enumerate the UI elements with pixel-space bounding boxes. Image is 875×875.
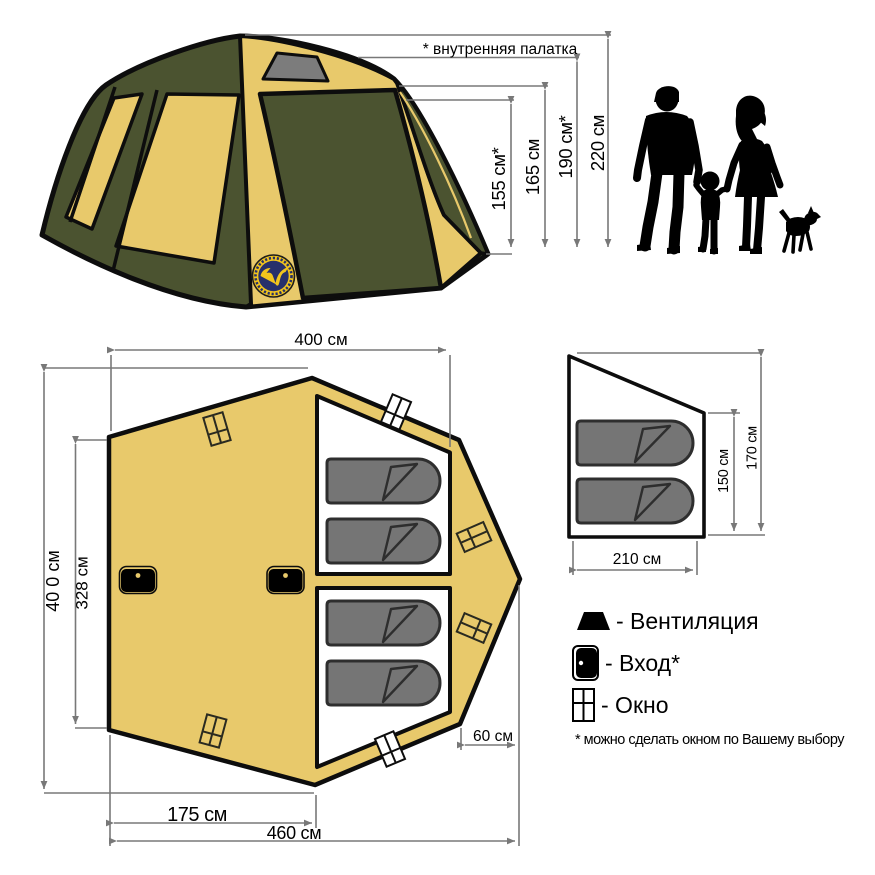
svg-text:220 см: 220 см	[587, 115, 608, 171]
svg-text:* внутренняя палатка: * внутренняя палатка	[423, 41, 578, 58]
svg-text:150 см: 150 см	[716, 449, 732, 493]
svg-text:155 см*: 155 см*	[488, 147, 509, 210]
svg-text:175 см: 175 см	[167, 804, 227, 826]
svg-text:40 0 см: 40 0 см	[43, 550, 63, 611]
svg-text:165 см: 165 см	[522, 139, 543, 195]
svg-text:- Вентиляция: - Вентиляция	[616, 608, 759, 634]
svg-text:- Вход*: - Вход*	[605, 650, 680, 676]
svg-text:460 см: 460 см	[267, 823, 322, 843]
svg-text:* можно сделать окном по Вашем: * можно сделать окном по Вашему выбору	[575, 732, 845, 748]
svg-text:400 см: 400 см	[294, 330, 347, 349]
svg-text:- Окно: - Окно	[601, 692, 669, 718]
svg-text:170 см: 170 см	[744, 426, 760, 470]
svg-text:328 см: 328 см	[72, 556, 91, 609]
svg-text:60 см: 60 см	[473, 728, 513, 745]
svg-text:190 см*: 190 см*	[555, 115, 576, 178]
svg-text:210 см: 210 см	[613, 551, 662, 568]
